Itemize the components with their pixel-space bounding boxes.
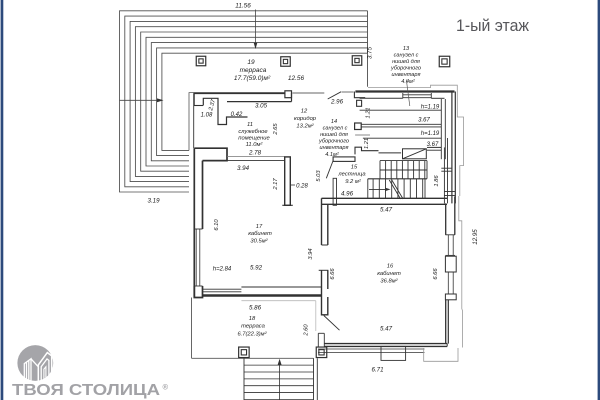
svg-text:1.08: 1.08 (201, 113, 213, 119)
svg-text:нишей для: нишей для (320, 131, 348, 138)
svg-text:13.2м²: 13.2м² (296, 124, 314, 130)
svg-text:19: 19 (247, 59, 255, 66)
svg-text:кабинет: кабинет (248, 231, 272, 237)
svg-text:5.47: 5.47 (380, 207, 393, 214)
svg-text:лестница: лестница (337, 172, 366, 178)
svg-text:инвентаря: инвентаря (320, 145, 349, 151)
svg-text:6.10: 6.10 (214, 219, 220, 231)
svg-text:30.5м²: 30.5м² (250, 239, 268, 245)
svg-text:санузел с: санузел с (394, 53, 419, 59)
svg-text:12.95: 12.95 (472, 229, 479, 245)
svg-text:уборочного: уборочного (318, 139, 349, 145)
svg-text:2.96: 2.96 (330, 99, 344, 106)
svg-text:17: 17 (256, 224, 263, 230)
svg-text:2.17: 2.17 (273, 178, 279, 191)
svg-text:инвентаря: инвентаря (392, 72, 421, 78)
svg-text:2.60: 2.60 (304, 324, 310, 337)
svg-text:нишей для: нишей для (392, 58, 420, 65)
svg-text:18: 18 (249, 316, 256, 322)
svg-text:служебное: служебное (238, 129, 268, 135)
svg-text:3.94: 3.94 (237, 165, 250, 172)
svg-text:h=1.19: h=1.19 (421, 131, 440, 137)
svg-text:5.86: 5.86 (249, 305, 262, 312)
svg-text:11: 11 (247, 122, 253, 128)
svg-text:3.94: 3.94 (308, 248, 314, 259)
svg-text:уборочного: уборочного (390, 66, 421, 72)
svg-text:13: 13 (403, 46, 410, 52)
svg-text:1.86: 1.86 (434, 175, 440, 187)
svg-text:терраса: терраса (241, 324, 266, 330)
svg-text:12.56: 12.56 (288, 75, 305, 82)
svg-text:3.75: 3.75 (367, 46, 374, 59)
svg-text:6.7(22.3)м²: 6.7(22.3)м² (237, 332, 267, 338)
svg-text:терраса: терраса (240, 67, 267, 74)
svg-text:помещение: помещение (238, 136, 270, 142)
svg-text:4.96: 4.96 (341, 191, 354, 198)
svg-text:16: 16 (387, 264, 394, 270)
svg-text:ТВОЯ СТОЛИЦА: ТВОЯ СТОЛИЦА (12, 382, 161, 399)
svg-text:36.8м²: 36.8м² (380, 279, 398, 285)
svg-text:®: ® (163, 383, 169, 392)
svg-text:3.67: 3.67 (418, 118, 430, 124)
svg-text:h=1.19: h=1.19 (421, 105, 440, 111)
svg-text:3.67: 3.67 (427, 142, 439, 148)
svg-text:17.7(59.0)м²: 17.7(59.0)м² (234, 75, 271, 82)
svg-text:3.19: 3.19 (147, 198, 160, 205)
svg-text:2.65: 2.65 (273, 123, 279, 136)
svg-text:1.21: 1.21 (364, 138, 370, 149)
svg-text:5.92: 5.92 (250, 265, 263, 272)
svg-text:кабинет: кабинет (377, 271, 401, 277)
svg-text:15: 15 (351, 165, 358, 171)
svg-text:11.0м²: 11.0м² (246, 142, 264, 148)
svg-text:2.78: 2.78 (248, 150, 262, 157)
svg-text:5.03: 5.03 (316, 170, 322, 182)
svg-text:1-ый этаж: 1-ый этаж (456, 17, 529, 35)
svg-text:6.71: 6.71 (371, 367, 383, 374)
svg-text:санузел с: санузел с (323, 126, 348, 132)
svg-text:9.2 м²: 9.2 м² (345, 179, 362, 185)
svg-text:h=2.84: h=2.84 (213, 267, 232, 273)
svg-text:1.21: 1.21 (366, 108, 372, 119)
svg-text:5.47: 5.47 (380, 326, 393, 333)
svg-text:11.56: 11.56 (235, 3, 251, 10)
svg-text:14: 14 (331, 119, 337, 125)
svg-text:4.4м²: 4.4м² (401, 79, 416, 85)
svg-text:0.28: 0.28 (296, 184, 308, 190)
svg-text:6.66: 6.66 (433, 268, 439, 280)
svg-text:6.66: 6.66 (330, 268, 336, 280)
svg-text:3.05: 3.05 (255, 103, 268, 110)
svg-text:0.42: 0.42 (231, 112, 243, 118)
svg-text:12: 12 (301, 109, 308, 115)
svg-text:коридор: коридор (294, 116, 317, 122)
